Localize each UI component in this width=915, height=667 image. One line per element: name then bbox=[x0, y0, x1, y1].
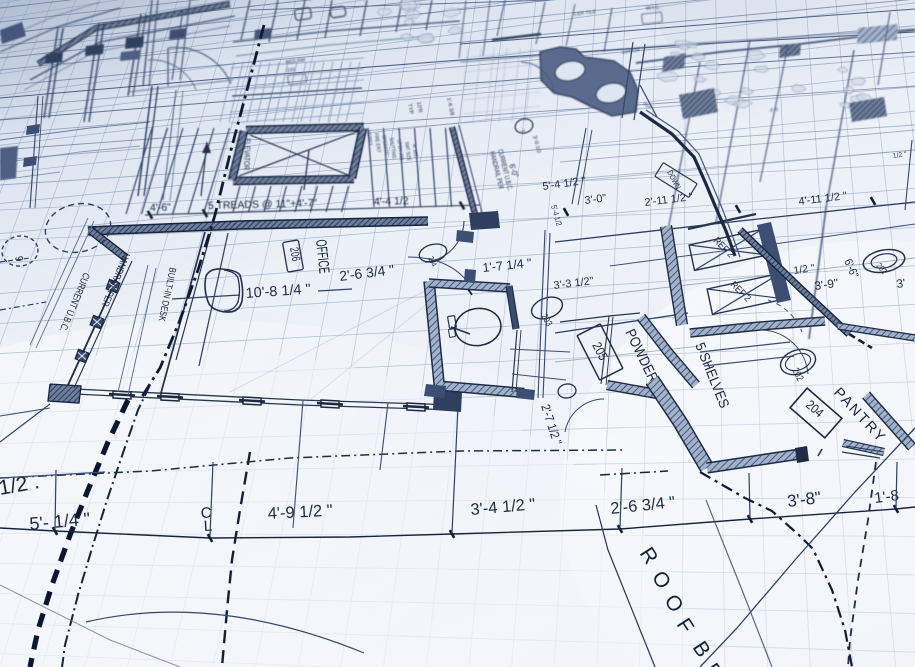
svg-text:OFFICE: OFFICE bbox=[312, 239, 332, 275]
svg-text:4'-4 1/2: 4'-4 1/2 bbox=[374, 195, 409, 208]
svg-text:4'-9 1/2 ": 4'-9 1/2 " bbox=[267, 502, 333, 523]
svg-text:4'-6": 4'-6" bbox=[150, 201, 171, 214]
svg-text:206: 206 bbox=[287, 246, 302, 262]
svg-text:4'-0: 4'-0 bbox=[769, 107, 778, 114]
svg-text:ELEVATOR: ELEVATOR bbox=[242, 138, 252, 170]
